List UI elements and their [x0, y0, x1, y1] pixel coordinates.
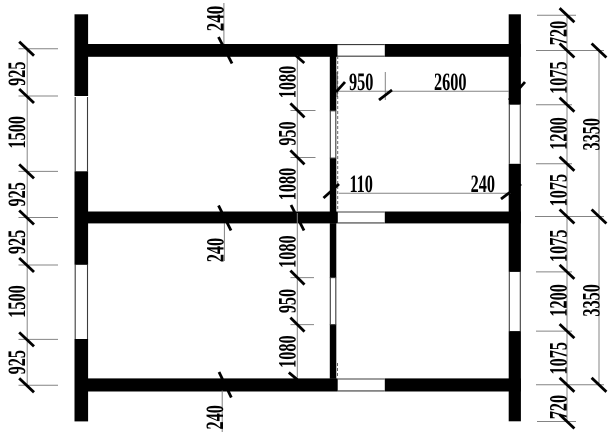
svg-text:1075: 1075 [544, 174, 572, 206]
svg-text:240: 240 [201, 238, 229, 262]
svg-text:720: 720 [544, 21, 572, 45]
svg-text:1075: 1075 [544, 230, 572, 262]
svg-text:950: 950 [273, 121, 301, 145]
svg-text:925: 925 [2, 62, 30, 86]
svg-text:1075: 1075 [544, 342, 572, 374]
svg-text:3350: 3350 [577, 118, 605, 150]
svg-text:1075: 1075 [544, 61, 572, 93]
svg-text:720: 720 [544, 395, 572, 419]
svg-text:1500: 1500 [2, 285, 30, 317]
svg-text:925: 925 [2, 350, 30, 374]
svg-text:1080: 1080 [273, 335, 301, 367]
svg-text:950: 950 [273, 289, 301, 313]
svg-text:240: 240 [471, 169, 495, 197]
svg-text:950: 950 [349, 67, 373, 95]
svg-text:925: 925 [2, 182, 30, 206]
svg-text:925: 925 [2, 230, 30, 254]
svg-text:1200: 1200 [544, 284, 572, 316]
svg-text:1080: 1080 [273, 66, 301, 98]
svg-text:1080: 1080 [273, 235, 301, 267]
svg-text:240: 240 [201, 6, 229, 31]
svg-text:3350: 3350 [577, 284, 605, 316]
svg-text:110: 110 [349, 169, 372, 197]
svg-text:1080: 1080 [273, 168, 301, 200]
svg-text:1500: 1500 [2, 116, 30, 148]
svg-text:240: 240 [200, 405, 228, 429]
svg-text:1200: 1200 [544, 117, 572, 149]
svg-text:2600: 2600 [434, 67, 466, 95]
